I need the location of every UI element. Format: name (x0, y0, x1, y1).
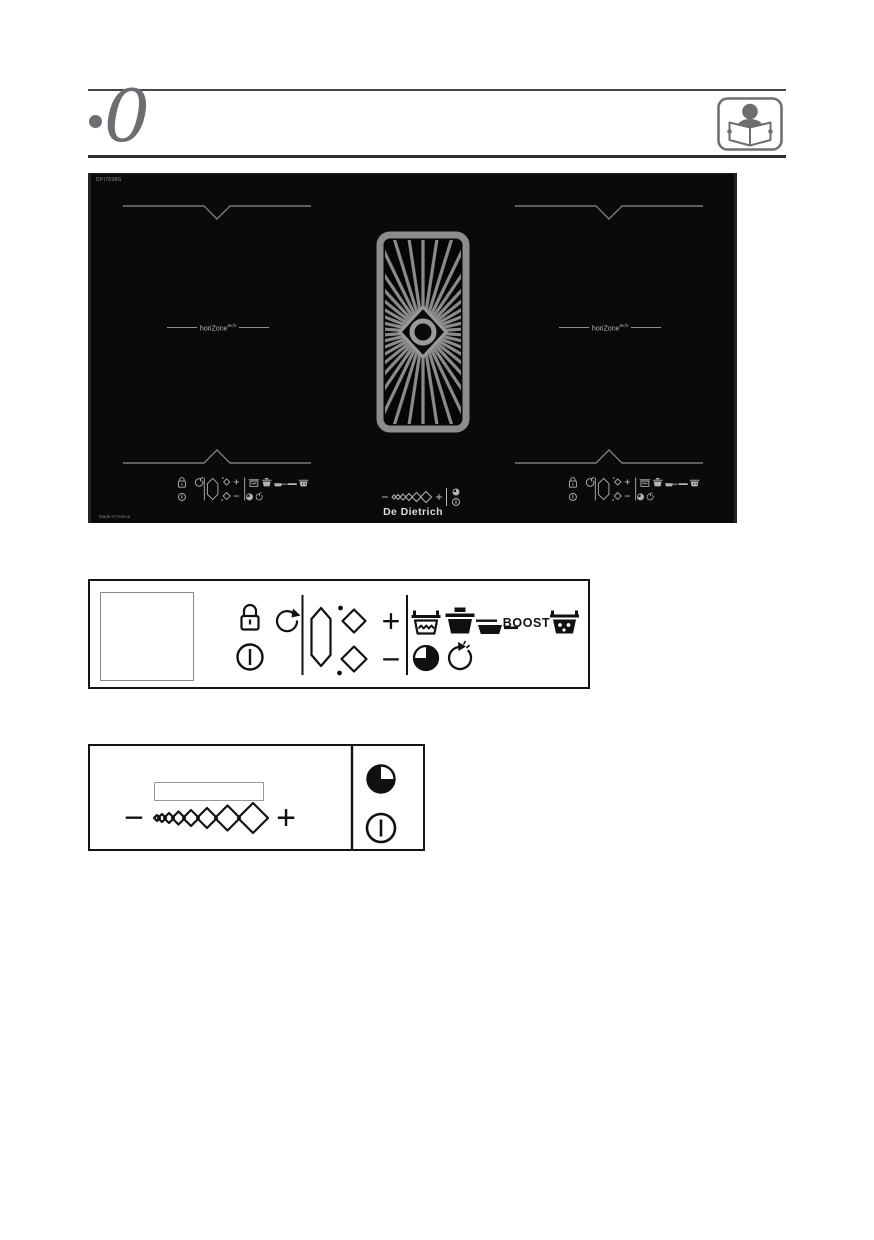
slider-minus-label: − (120, 801, 148, 835)
digit-display-icon (598, 478, 609, 499)
section-number: 0 (104, 80, 150, 152)
label-dash (559, 327, 589, 328)
rotate-icon (586, 479, 594, 487)
divider (635, 478, 636, 501)
lock-icon (571, 478, 575, 482)
divider (204, 478, 205, 501)
stew-pot-icon (656, 478, 660, 479)
manual-page: { "colors": { "page_bg": "#ffffff", "coo… (0, 0, 874, 1240)
manual-icon-box (716, 96, 784, 152)
horizone-label-left: horiZonetech (153, 323, 283, 332)
label-dash (239, 327, 269, 328)
diamond-down-icon (223, 493, 230, 500)
zone-marker-top-right (515, 205, 703, 221)
power-slider-diamonds (392, 492, 432, 503)
boil-pot-icon (412, 611, 441, 634)
lock-icon (244, 605, 256, 616)
stew-pot-icon (446, 608, 475, 634)
panel-diagram-box: + − BOOST (88, 579, 590, 689)
zone-marker-bottom-right (515, 449, 703, 465)
horizone-text: horiZone (592, 325, 620, 332)
control-panel-right (565, 472, 702, 506)
boost-mini-label (678, 483, 688, 485)
brand-logo: De Dietrich (368, 506, 458, 518)
zone-marker-top-left (123, 205, 311, 221)
stew-pot-icon (265, 478, 269, 479)
made-in-text: Made in France (99, 514, 130, 519)
slider-plus-label: + (272, 801, 300, 835)
frying-pan-icon (665, 483, 673, 486)
diamond-up-icon (224, 479, 230, 485)
plus-button-label: + (377, 605, 405, 637)
lock-icon (180, 478, 184, 482)
label-dash (167, 327, 197, 328)
person-reading-manual-icon (716, 96, 784, 152)
zone-marker-bottom-left (123, 449, 311, 465)
control-panel-left (174, 472, 311, 506)
plus-icon (234, 479, 239, 484)
section-bullet (89, 115, 102, 128)
diamond-down-icon (614, 493, 621, 500)
plus-icon (625, 479, 630, 484)
extractor-grille (376, 231, 470, 433)
digit-display-icon (207, 478, 218, 499)
divider (446, 488, 447, 506)
minus-button-label: − (377, 643, 405, 675)
horizone-label-right: horiZonetech (545, 323, 675, 332)
diamond-up-icon (615, 479, 621, 485)
horizone-sup: tech (228, 323, 237, 328)
diamond-down-icon (342, 647, 367, 672)
horizone-text: horiZone (200, 325, 228, 332)
panel-diagram-icons (90, 581, 588, 687)
timer-elapsed-icon (449, 641, 471, 669)
divider (244, 478, 245, 501)
horizone-sup: tech (620, 323, 629, 328)
plus-icon (436, 494, 442, 500)
slider-diagram-box: − + (88, 744, 425, 851)
header-top-rule (88, 89, 786, 91)
power-slider-diamonds (154, 803, 268, 833)
label-dash (631, 327, 661, 328)
cooktop-photo: DPI7698G horiZonetech horiZonetech (88, 173, 737, 523)
header-bottom-rule (88, 155, 786, 158)
boost-mini-label (287, 483, 297, 485)
digit-display-icon (312, 608, 331, 666)
rotate-icon (195, 479, 203, 487)
divider (595, 478, 596, 501)
model-text: DPI7698G (96, 177, 122, 183)
frying-pan-icon (274, 483, 282, 486)
diamond-up-icon (343, 610, 366, 633)
boost-label: BOOST (498, 616, 555, 630)
